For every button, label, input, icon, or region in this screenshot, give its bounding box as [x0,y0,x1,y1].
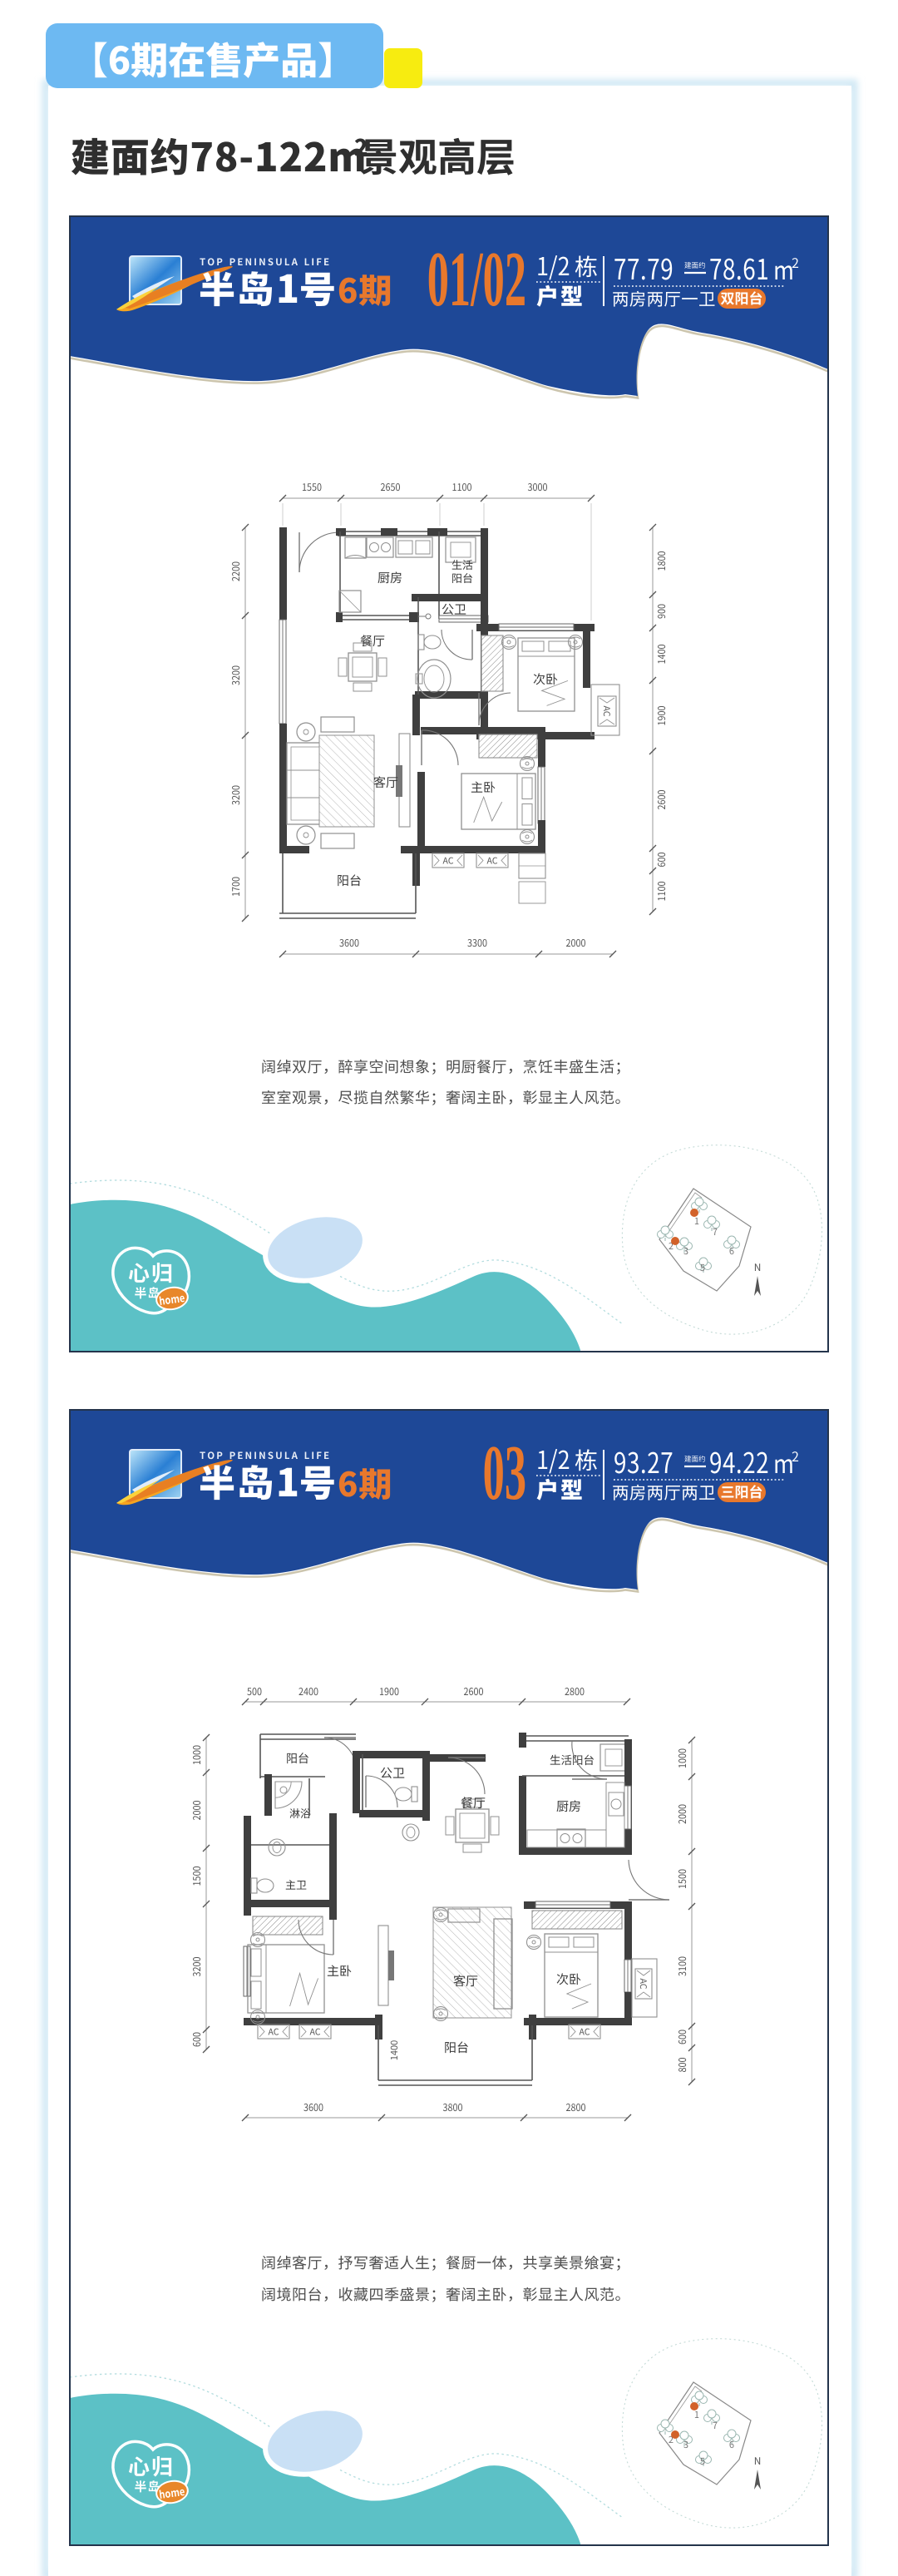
svg-text:03: 03 [483,1430,526,1516]
svg-text:01/02: 01/02 [427,236,526,323]
